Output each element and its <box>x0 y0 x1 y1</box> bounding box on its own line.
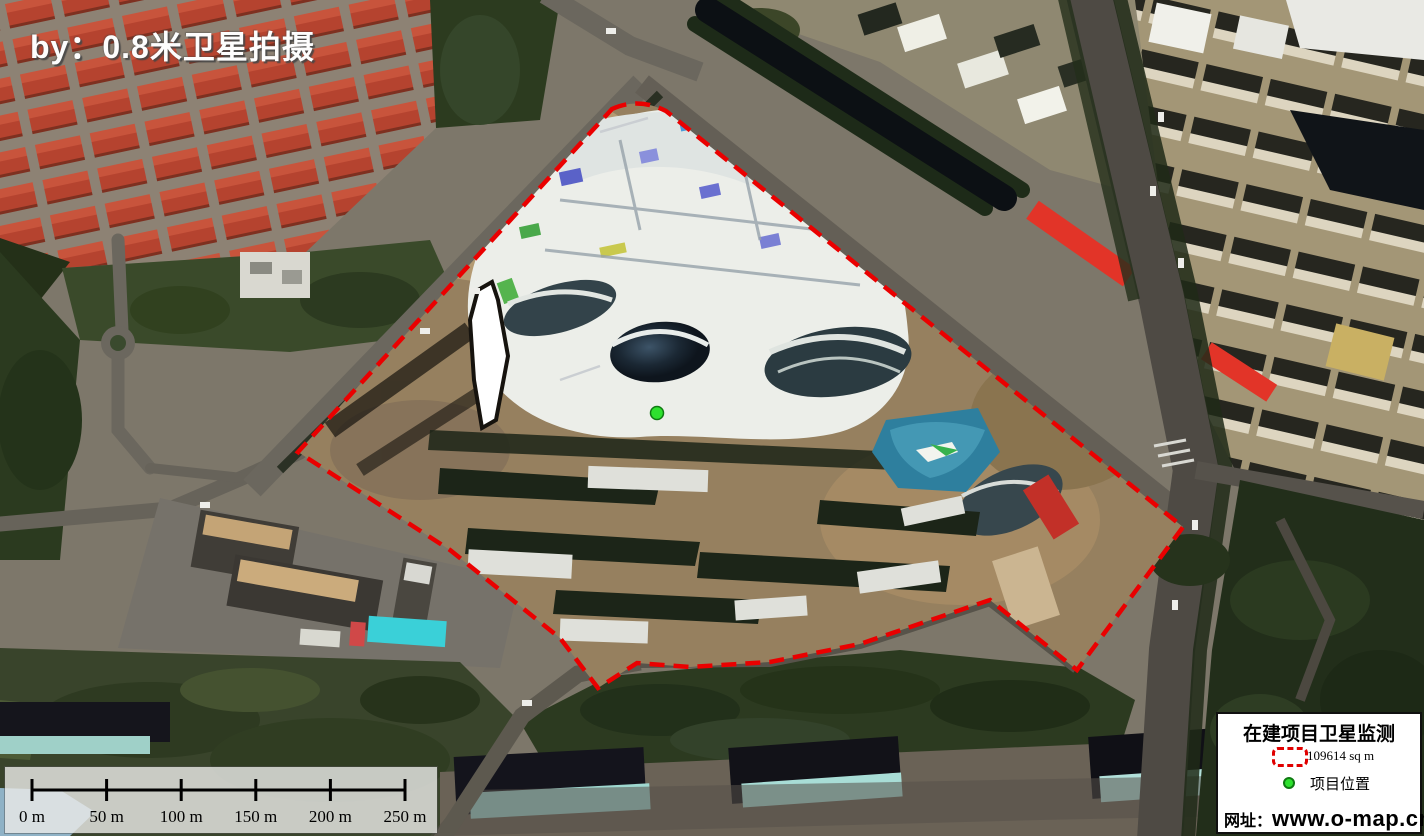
image-credit-label: by：0.8米卫星拍摄 <box>30 22 315 68</box>
satellite-map[interactable]: by：0.8米卫星拍摄 0 m 50 m 100 m 150 m 200 m 2… <box>0 0 1424 836</box>
legend-location-row: 项目位置 <box>1218 772 1420 796</box>
location-dot-icon <box>1283 777 1295 789</box>
legend-boundary-row: 109614 sq m <box>1218 746 1420 768</box>
legend-website-row: 网址：www.o-map.cn <box>1224 806 1420 832</box>
location-label: 项目位置 <box>1310 773 1370 794</box>
map-scale-bar: 0 m 50 m 100 m 150 m 200 m 250 m <box>5 767 437 833</box>
dashed-boundary-icon <box>1272 747 1308 767</box>
legend-title: 在建项目卫星监测 <box>1218 719 1420 746</box>
project-area-value: 109614 sq m <box>1307 748 1374 764</box>
project-location-marker[interactable] <box>651 407 664 420</box>
scale-label: 0 m <box>19 807 45 827</box>
scale-label: 50 m <box>89 807 123 827</box>
scale-label: 150 m <box>234 807 277 827</box>
scale-label: 200 m <box>309 807 352 827</box>
scale-label: 250 m <box>384 807 427 827</box>
scale-bar-ruler <box>5 767 437 833</box>
satellite-image <box>0 0 1424 836</box>
website-url[interactable]: www.o-map.cn <box>1272 806 1424 831</box>
website-label: 网址： <box>1224 813 1272 830</box>
map-legend: 在建项目卫星监测 109614 sq m 项目位置 网址：www.o-map.c… <box>1216 712 1422 834</box>
scale-label: 100 m <box>160 807 203 827</box>
